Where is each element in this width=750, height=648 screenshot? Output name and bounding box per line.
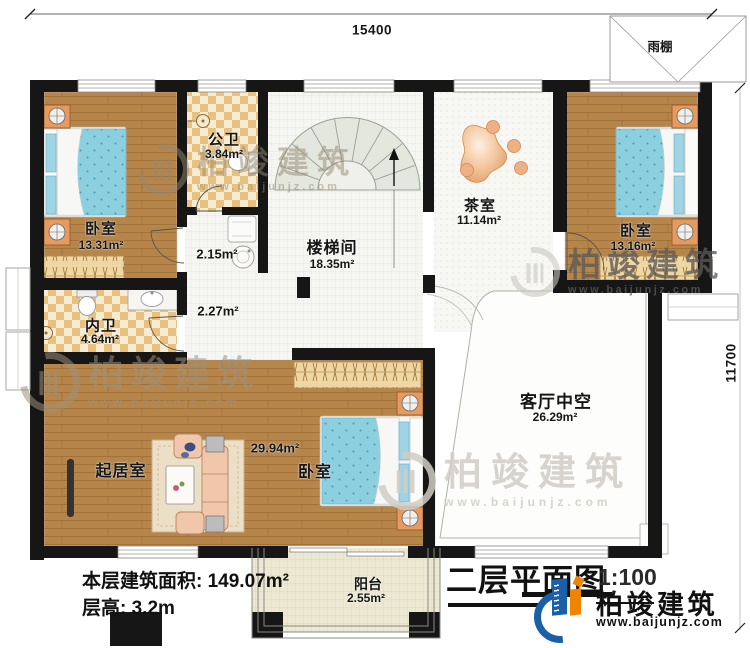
room-area-balcony: 2.55m²: [347, 592, 385, 604]
brand-url: www.baijunjz.com: [596, 615, 723, 629]
bed-top-left: [44, 127, 126, 217]
title-underline: [448, 603, 540, 607]
person-figure: [185, 443, 196, 452]
area-lavatory: 2.15m²: [196, 248, 237, 261]
room-area-bedroom-tl: 13.31m²: [79, 239, 124, 251]
exterior-frame-left-1: [6, 268, 30, 330]
floor-height-value: 3.2m: [132, 598, 175, 619]
room-label-void: 客厅中空: [520, 394, 592, 411]
wardrobe-top-right: [600, 256, 697, 280]
toilet-inner-bath: [77, 290, 97, 316]
room-label-tea-room: 茶室: [464, 199, 496, 214]
room-area-void: 26.29m²: [533, 411, 578, 423]
dimension-right: 11700: [724, 343, 738, 382]
canopy-label: 雨棚: [647, 41, 672, 54]
room-area-bedroom-tr: 13.16m²: [611, 240, 656, 252]
room-area-public-bath: 3.84m²: [205, 148, 243, 160]
brand-logo-icon: [534, 577, 594, 633]
exterior-frame-left-2: [6, 332, 30, 390]
room-area-tea-room: 11.14m²: [457, 214, 501, 226]
window-top-2: [198, 80, 246, 92]
room-label-balcony: 阳台: [354, 577, 382, 591]
floor-area-label: 本层建筑面积:: [82, 571, 202, 592]
dimension-top: 15400: [352, 23, 392, 37]
exterior-frame-right: [668, 294, 738, 320]
window-bottom-1: [118, 546, 198, 558]
room-label-bedroom-bm: 卧室: [298, 465, 332, 481]
area-hallway: 2.27m²: [197, 305, 238, 318]
window-top-3: [304, 80, 394, 92]
floor-plan-page: 柏竣建筑 www.baijunjz.com 柏竣建筑 www.baijunjz.…: [0, 0, 750, 648]
balcony-post-left: [252, 612, 283, 638]
bed-bottom-middle: [320, 416, 423, 506]
window-top-1: [78, 80, 155, 92]
wardrobe-top-left: [44, 256, 124, 280]
room-label-bedroom-tr: 卧室: [620, 224, 652, 239]
room-label-public-bath: 公卫: [208, 133, 240, 148]
floor-height-label: 层高:: [82, 598, 126, 619]
room-area-inner-bath: 4.64m²: [81, 333, 119, 345]
room-label-stairwell: 楼梯间: [306, 241, 357, 257]
room-area-bedroom-bm: 29.94m²: [251, 442, 299, 455]
room-label-living-room: 起居室: [95, 464, 146, 480]
room-label-bedroom-tl: 卧室: [85, 222, 117, 237]
sink-inner-bath: [128, 289, 177, 310]
tv-icon: [67, 459, 74, 517]
floor-area-stat: 本层建筑面积: 149.07m²: [82, 566, 289, 593]
balcony-post-right: [409, 612, 440, 638]
room-area-stairwell: 18.35m²: [310, 258, 355, 270]
floor-area-value: 149.07m²: [208, 571, 289, 592]
wardrobe-bottom-middle: [294, 362, 421, 388]
window-top-4: [454, 80, 542, 92]
bed-top-right: [616, 127, 698, 217]
rain-canopy: [610, 16, 746, 82]
floor-height-stat: 层高: 3.2m: [82, 593, 175, 620]
